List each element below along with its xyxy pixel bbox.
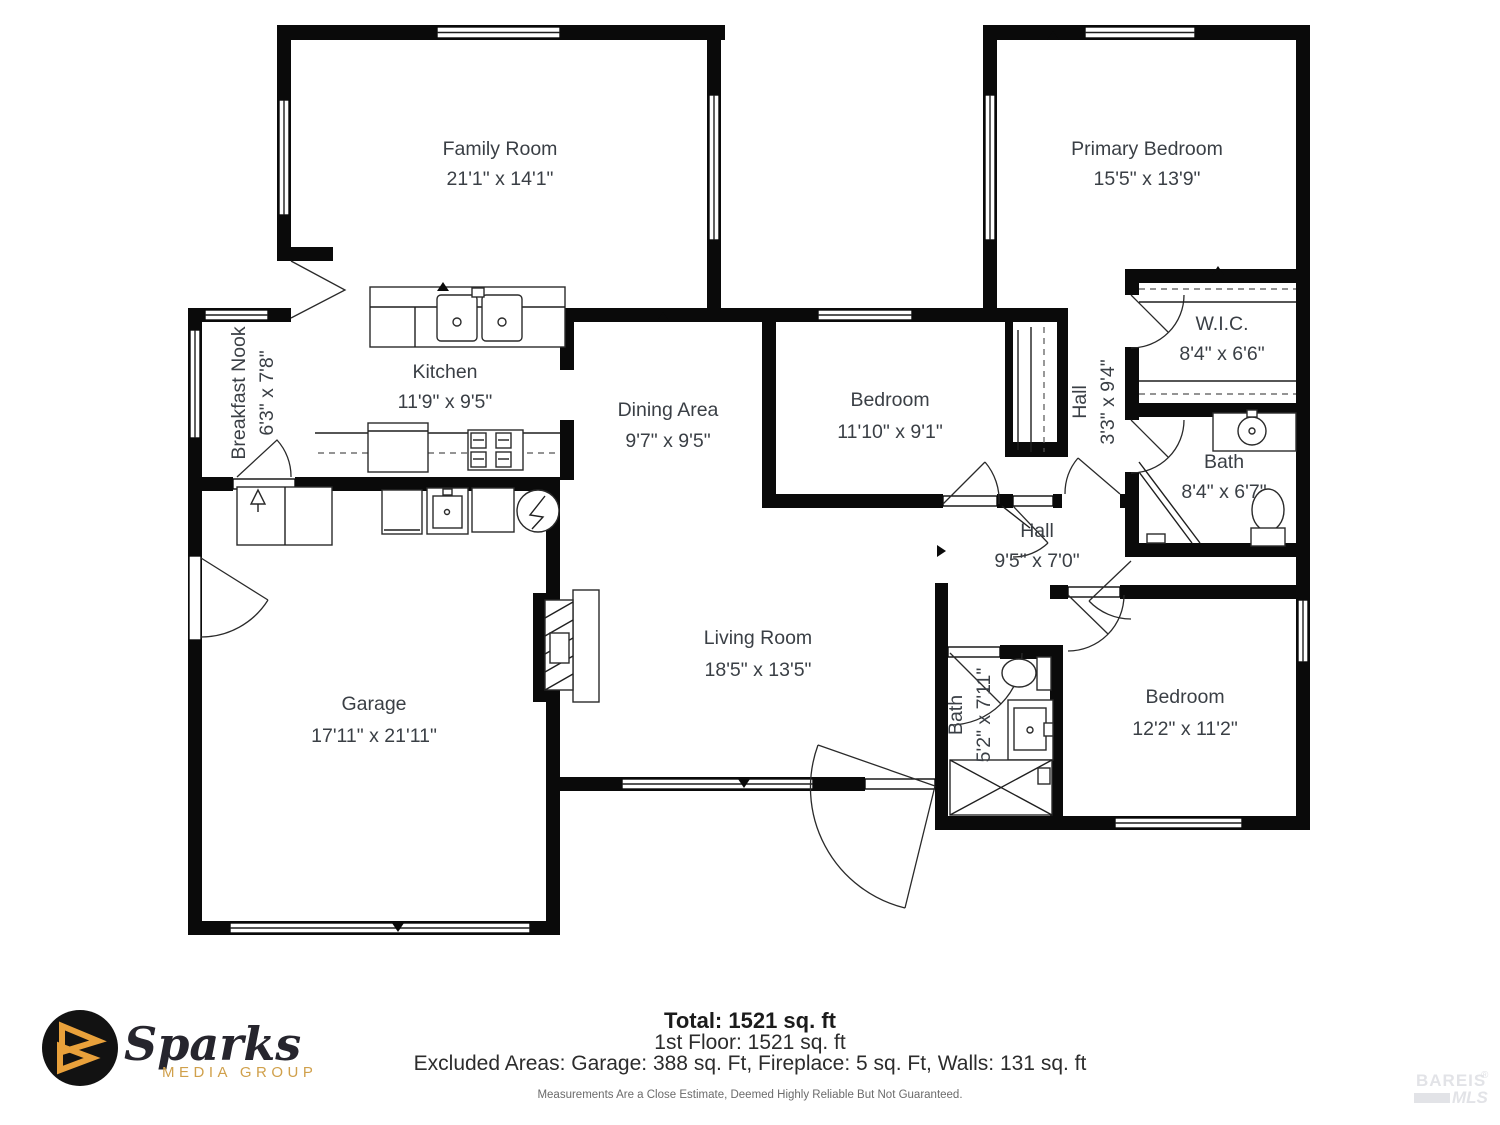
- first-floor-sqft-text: 1st Floor: 1521 sq. ft: [654, 1031, 846, 1054]
- furnace: [237, 487, 332, 545]
- room-dims-primary-bedroom: 15'5" x 13'9": [1094, 168, 1201, 190]
- room-label-family-room: Family Room: [443, 138, 558, 160]
- svg-text:5'2" x 7'11": 5'2" x 7'11": [973, 668, 995, 763]
- floor-plan-canvas: Family Room 21'1" x 14'1" Primary Bedroo…: [0, 0, 1500, 1125]
- stove: [468, 430, 523, 470]
- logo-tagline-text: MEDIA GROUP: [162, 1064, 317, 1081]
- room-label-garage: Garage: [341, 693, 406, 715]
- room-label-hall-lower: Hall: [1020, 520, 1054, 542]
- shower-valve-icon: [1147, 534, 1165, 543]
- wic-shelving: [1139, 289, 1296, 394]
- bareis-mls-watermark: BAREIS ® MLS: [1414, 1070, 1489, 1107]
- room-label-bedroom-middle: Bedroom: [850, 389, 929, 411]
- room-label-living-room: Living Room: [704, 627, 812, 649]
- floor-plan-page: Family Room 21'1" x 14'1" Primary Bedroo…: [0, 0, 1500, 1125]
- room-dims-dining-area: 9'7" x 9'5": [625, 430, 710, 452]
- toilet-icon: [1002, 659, 1036, 687]
- watermark-line2: MLS: [1452, 1088, 1489, 1107]
- svg-text:Hall: Hall: [1069, 385, 1091, 419]
- room-label-bath-top: Bath: [1204, 451, 1244, 473]
- room-dims-kitchen: 11'9" x 9'5": [398, 391, 493, 413]
- water-heater-icon: [517, 490, 559, 532]
- svg-text:6'3" x 7'8": 6'3" x 7'8": [256, 350, 278, 435]
- sparks-media-group-logo: Sparks MEDIA GROUP: [42, 1010, 317, 1086]
- garage-appliances: [382, 488, 559, 534]
- room-label-primary-bedroom: Primary Bedroom: [1071, 138, 1223, 160]
- room-dims-living-room: 18'5" x 13'5": [705, 659, 812, 681]
- excluded-areas-text: Excluded Areas: Garage: 388 sq. Ft, Fire…: [414, 1052, 1087, 1075]
- room-label-dining-area: Dining Area: [618, 399, 719, 421]
- kitchen-island: [370, 287, 565, 347]
- logo-brand-text: Sparks: [124, 1017, 301, 1071]
- svg-text:3'3" x 9'4": 3'3" x 9'4": [1097, 359, 1119, 444]
- room-label-breakfast-nook: Breakfast Nook 6'3" x 7'8": [228, 326, 278, 460]
- room-label-hall-upper: Hall 3'3" x 9'4": [1069, 359, 1119, 444]
- room-label-bedroom-bottom: Bedroom: [1145, 686, 1224, 708]
- room-dims-wic: 8'4" x 6'6": [1179, 343, 1264, 365]
- svg-text:Bath: Bath: [945, 695, 967, 735]
- fireplace: [545, 590, 599, 702]
- svg-text:Breakfast Nook: Breakfast Nook: [228, 326, 250, 460]
- room-dims-bedroom-bottom: 12'2" x 11'2": [1132, 718, 1238, 740]
- bedroom-closet-doors: [1018, 327, 1044, 452]
- bath-top-fixtures: [1139, 410, 1296, 546]
- room-label-kitchen: Kitchen: [412, 361, 477, 383]
- walls: [188, 25, 1310, 935]
- room-dims-family-room: 21'1" x 14'1": [447, 168, 554, 190]
- room-dims-hall-lower: 9'5" x 7'0": [994, 550, 1079, 572]
- room-dims-garage: 17'11" x 21'11": [311, 725, 437, 747]
- footer: Total: 1521 sq. ft 1st Floor: 1521 sq. f…: [414, 1008, 1087, 1101]
- room-dims-bath-top: 8'4" x 6'7": [1181, 481, 1266, 503]
- total-sqft-text: Total: 1521 sq. ft: [664, 1008, 837, 1033]
- room-dims-bedroom-middle: 11'10" x 9'1": [837, 421, 943, 443]
- disclaimer-text: Measurements Are a Close Estimate, Deeme…: [537, 1089, 962, 1101]
- kitchen-counter: [315, 423, 560, 472]
- room-label-bath-bottom: Bath 5'2" x 7'11": [945, 668, 995, 763]
- watermark-reg: ®: [1481, 1070, 1489, 1081]
- room-label-wic: W.I.C.: [1195, 313, 1248, 335]
